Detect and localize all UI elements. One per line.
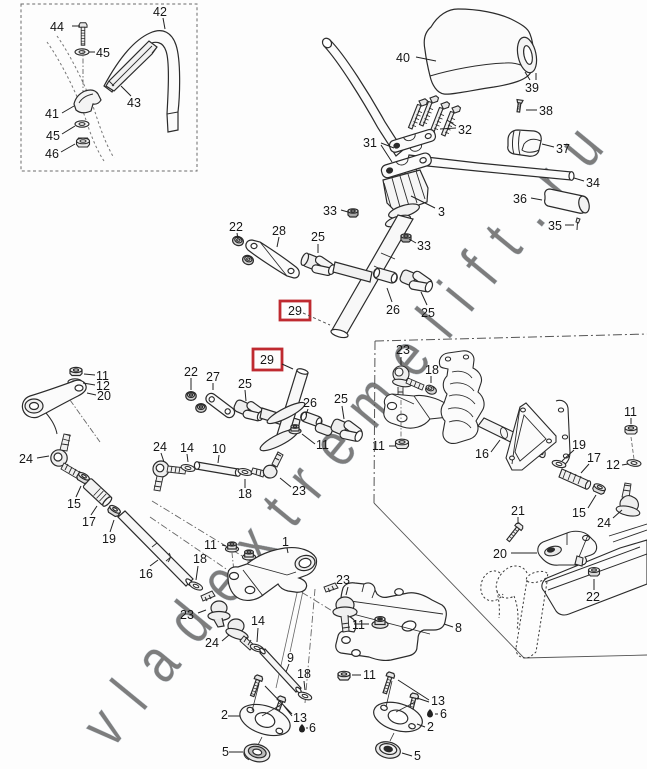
svg-text:14: 14 — [251, 614, 265, 628]
svg-text:23: 23 — [292, 484, 306, 498]
svg-text:29: 29 — [288, 304, 302, 318]
svg-text:26: 26 — [303, 396, 317, 410]
svg-text:1: 1 — [282, 535, 289, 549]
svg-text:11: 11 — [624, 405, 637, 419]
svg-text:23: 23 — [396, 343, 410, 357]
svg-text:37: 37 — [556, 142, 570, 156]
svg-text:43: 43 — [127, 96, 141, 110]
svg-text:5: 5 — [414, 749, 421, 763]
svg-text:24: 24 — [205, 636, 219, 650]
svg-text:13: 13 — [293, 711, 307, 725]
svg-text:25: 25 — [421, 306, 435, 320]
svg-text:23: 23 — [180, 608, 194, 622]
svg-text:11: 11 — [363, 668, 376, 682]
svg-text:18: 18 — [193, 552, 207, 566]
svg-text:42: 42 — [153, 5, 167, 19]
svg-text:21: 21 — [511, 504, 525, 518]
svg-text:36: 36 — [513, 192, 527, 206]
svg-text:22: 22 — [586, 590, 600, 604]
svg-text:41: 41 — [45, 107, 59, 121]
svg-text:34: 34 — [586, 176, 600, 190]
svg-text:33: 33 — [417, 239, 431, 253]
svg-text:17: 17 — [587, 451, 601, 465]
svg-text:32: 32 — [458, 123, 472, 137]
svg-text:24: 24 — [153, 440, 167, 454]
svg-text:33: 33 — [323, 204, 337, 218]
svg-text:40: 40 — [396, 51, 410, 65]
svg-text:24: 24 — [19, 452, 33, 466]
svg-text:22: 22 — [184, 365, 198, 379]
svg-text:17: 17 — [82, 515, 96, 529]
svg-text:25: 25 — [238, 377, 252, 391]
svg-text:29: 29 — [260, 353, 274, 367]
svg-text:3: 3 — [438, 205, 445, 219]
svg-text:16: 16 — [139, 567, 153, 581]
svg-text:6: 6 — [309, 721, 316, 735]
svg-text:45: 45 — [46, 129, 60, 143]
svg-text:19: 19 — [102, 532, 116, 546]
svg-text:15: 15 — [67, 497, 81, 511]
svg-text:20: 20 — [97, 389, 111, 403]
svg-text:39: 39 — [525, 81, 539, 95]
svg-text:9: 9 — [287, 651, 294, 665]
svg-text:11: 11 — [204, 538, 217, 552]
svg-text:23: 23 — [336, 573, 350, 587]
svg-text:25: 25 — [311, 230, 325, 244]
svg-text:18: 18 — [297, 667, 311, 681]
svg-text:26: 26 — [386, 303, 400, 317]
svg-text:22: 22 — [229, 220, 243, 234]
svg-text:44: 44 — [50, 20, 64, 34]
svg-text:8: 8 — [455, 621, 462, 635]
svg-text:15: 15 — [572, 506, 586, 520]
svg-text:5: 5 — [222, 745, 229, 759]
svg-text:24: 24 — [597, 516, 611, 530]
svg-text:2: 2 — [427, 720, 434, 734]
svg-text:10: 10 — [212, 442, 226, 456]
svg-text:13: 13 — [431, 694, 445, 708]
svg-text:38: 38 — [539, 104, 553, 118]
svg-text:27: 27 — [206, 370, 220, 384]
svg-text:45: 45 — [96, 46, 110, 60]
svg-text:11: 11 — [316, 438, 329, 452]
svg-text:35: 35 — [548, 219, 562, 233]
svg-text:6: 6 — [440, 707, 447, 721]
svg-text:18: 18 — [425, 363, 439, 377]
svg-text:11: 11 — [352, 618, 365, 632]
svg-text:14: 14 — [180, 441, 194, 455]
svg-text:25: 25 — [334, 392, 348, 406]
svg-text:31: 31 — [363, 136, 377, 150]
svg-text:12: 12 — [606, 458, 620, 472]
svg-text:46: 46 — [45, 147, 59, 161]
svg-text:11: 11 — [372, 439, 385, 453]
svg-text:19: 19 — [572, 438, 586, 452]
svg-text:2: 2 — [221, 708, 228, 722]
svg-text:20: 20 — [493, 547, 507, 561]
svg-text:18: 18 — [238, 487, 252, 501]
svg-text:16: 16 — [475, 447, 489, 461]
svg-text:28: 28 — [272, 224, 286, 238]
